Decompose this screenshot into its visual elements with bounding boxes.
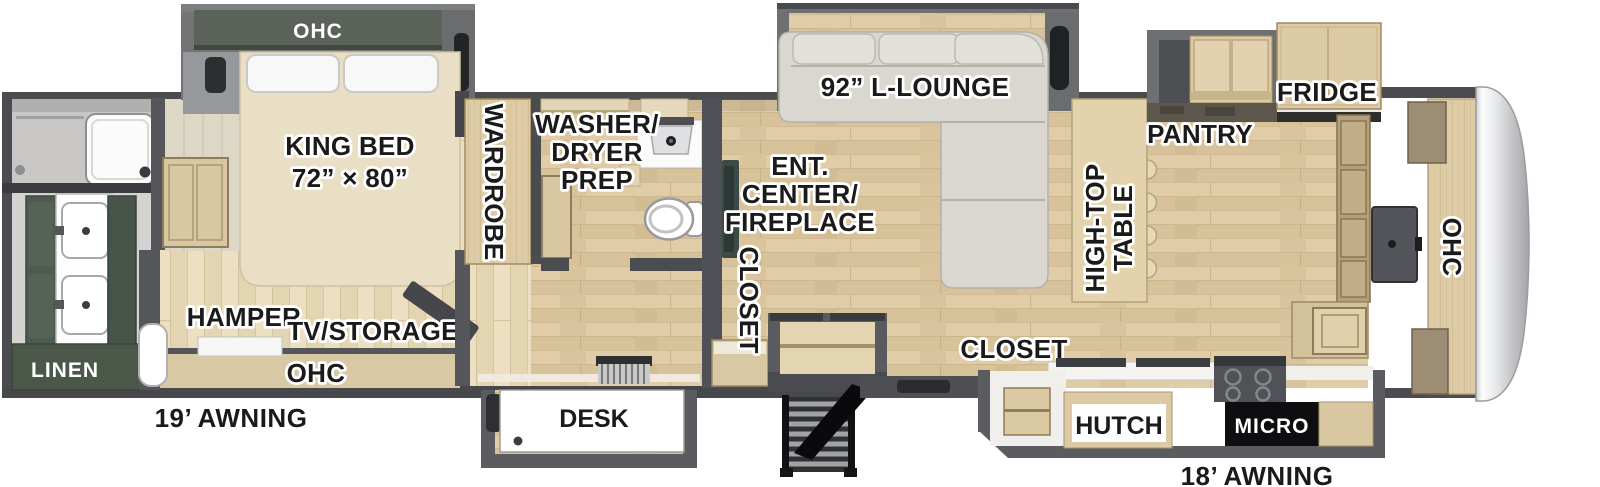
svg-text:WASHER/: WASHER/ — [535, 109, 658, 139]
svg-text:ENT.: ENT. — [771, 151, 829, 181]
svg-text:HAMPER: HAMPER — [187, 302, 301, 332]
svg-text:PANTRY: PANTRY — [1147, 119, 1253, 149]
svg-text:DESK: DESK — [559, 405, 628, 433]
svg-text:FRIDGE: FRIDGE — [1277, 77, 1377, 107]
svg-text:KING BED: KING BED — [285, 131, 415, 161]
svg-text:FIREPLACE: FIREPLACE — [725, 207, 875, 237]
svg-text:18’ AWNING: 18’ AWNING — [1181, 461, 1334, 487]
svg-text:CLOSET: CLOSET — [734, 246, 764, 353]
svg-text:72” × 80”: 72” × 80” — [292, 163, 408, 193]
svg-text:LINEN: LINEN — [31, 359, 99, 382]
svg-text:19’ AWNING: 19’ AWNING — [155, 403, 308, 433]
svg-text:WARDROBE: WARDROBE — [479, 104, 509, 261]
svg-text:OHC: OHC — [1437, 218, 1467, 277]
svg-text:HUTCH: HUTCH — [1075, 412, 1163, 440]
svg-text:MICRO: MICRO — [1235, 415, 1310, 438]
svg-text:CLOSET: CLOSET — [960, 334, 1067, 364]
svg-text:CENTER/: CENTER/ — [742, 179, 858, 209]
svg-text:DRYER: DRYER — [551, 137, 643, 167]
svg-text:92” L-LOUNGE: 92” L-LOUNGE — [821, 72, 1010, 102]
svg-text:PREP: PREP — [561, 165, 633, 195]
svg-text:TABLE: TABLE — [1108, 185, 1138, 271]
svg-text:OHC: OHC — [287, 358, 346, 388]
svg-text:OHC: OHC — [293, 20, 343, 43]
svg-text:TV/STORAGE: TV/STORAGE — [287, 316, 459, 346]
svg-text:HIGH-TOP: HIGH-TOP — [1080, 163, 1110, 292]
